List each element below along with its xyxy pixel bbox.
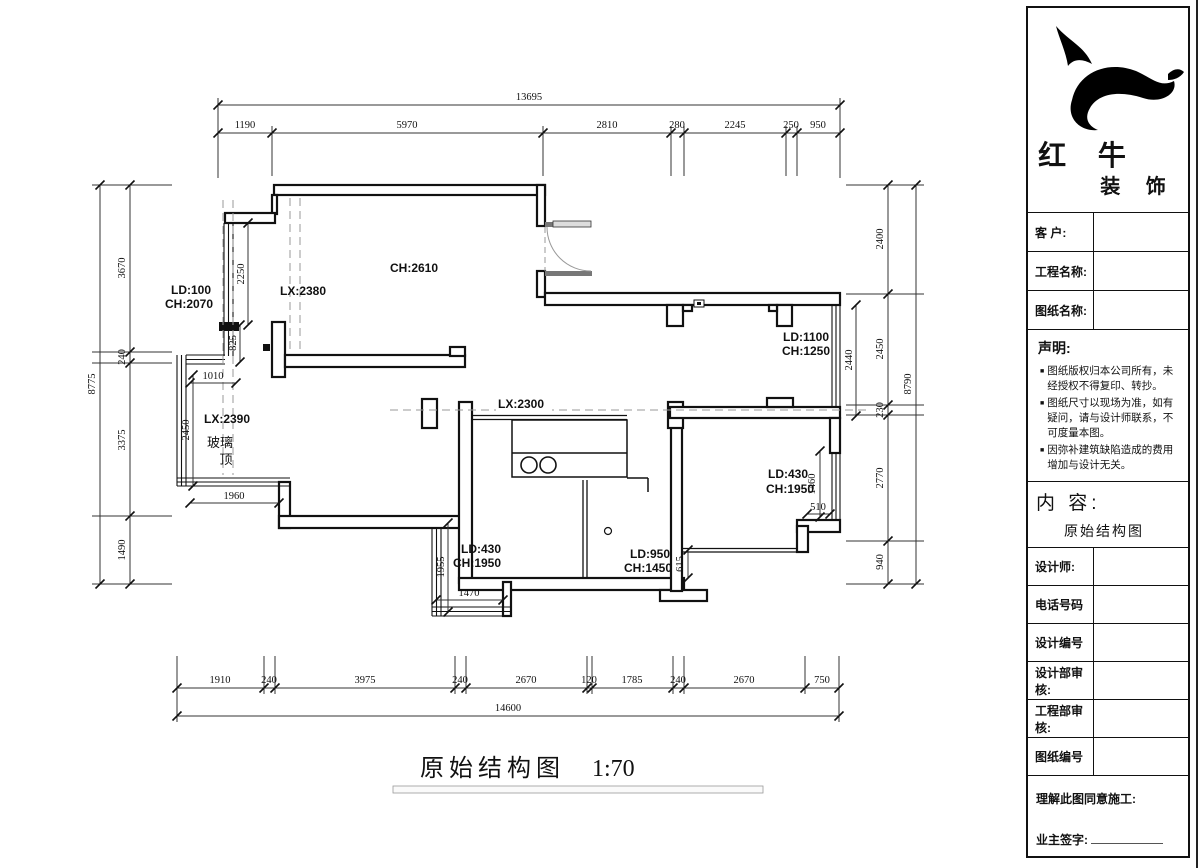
svg-text:1960: 1960: [224, 491, 245, 502]
svg-text:2670: 2670: [734, 675, 755, 686]
dim-right-total: 8790: [903, 374, 914, 395]
drawing-sheet: 13695 1190 5970 2810 280 2245 250 950 14…: [0, 0, 1200, 868]
svg-text:240: 240: [117, 349, 128, 365]
svg-text:250: 250: [783, 120, 799, 131]
drawing-title-text: 原始结构图: [420, 755, 565, 782]
row-sheet-name-label: 图纸名称:: [1028, 291, 1094, 329]
row-design-no: 设计编号: [1028, 624, 1188, 662]
svg-text:940: 940: [875, 554, 886, 570]
svg-text:2400: 2400: [875, 229, 886, 250]
label-lx2380: LX:2380: [280, 284, 326, 298]
statement-heading: 声明:: [1038, 338, 1182, 358]
svg-text:1010: 1010: [203, 371, 224, 382]
row-design-review-value: [1094, 662, 1188, 699]
label-ch2610: CH:2610: [390, 261, 438, 275]
floor-drain: [605, 528, 612, 535]
svg-text:615: 615: [675, 556, 686, 572]
statement-item: ■图纸版权归本公司所有，未经授权不得复印、转抄。: [1040, 364, 1182, 393]
content-section: 内 容: 原始结构图: [1028, 482, 1188, 548]
svg-text:1955: 1955: [436, 557, 447, 578]
wall-marks: [219, 300, 704, 351]
svg-text:950: 950: [810, 120, 826, 131]
svg-text:2245: 2245: [725, 120, 746, 131]
row-sheet-no: 图纸编号: [1028, 738, 1188, 776]
svg-text:230: 230: [875, 402, 886, 418]
svg-text:510: 510: [810, 502, 826, 513]
floor-plan-svg: 13695 1190 5970 2810 280 2245 250 950 14…: [0, 0, 1020, 868]
content-value: 原始结构图: [1064, 521, 1180, 541]
bullet-square-icon: ■: [1040, 399, 1044, 440]
counter-sink: [512, 420, 648, 492]
svg-text:240: 240: [452, 675, 468, 686]
dim-left-total: 8775: [87, 374, 98, 395]
logo-cell: 红 牛 装 饰: [1028, 8, 1188, 213]
row-eng-review-label: 工程部审核:: [1028, 700, 1094, 737]
dim-bottom-total: 14600: [495, 703, 521, 714]
svg-text:1470: 1470: [459, 588, 480, 599]
row-sheet-name: 图纸名称:: [1028, 291, 1188, 330]
svg-text:2770: 2770: [875, 468, 886, 489]
label-lx2300: LX:2300: [498, 397, 544, 411]
sheet-right-border: [1196, 0, 1198, 868]
svg-text:1490: 1490: [117, 540, 128, 561]
row-eng-review: 工程部审核:: [1028, 700, 1188, 738]
statement-section: 声明: ■图纸版权归本公司所有，未经授权不得复印、转抄。 ■图纸尺寸以现场为准，…: [1028, 330, 1188, 482]
svg-text:2440: 2440: [844, 350, 855, 371]
label-ch1250: CH:1250: [782, 344, 830, 358]
row-eng-review-value: [1094, 700, 1188, 737]
row-phone-value: [1094, 586, 1188, 623]
svg-text:2450: 2450: [875, 339, 886, 360]
row-sheet-no-label: 图纸编号: [1028, 738, 1094, 775]
row-project-name: 工程名称:: [1028, 252, 1188, 291]
row-phone: 电话号码: [1028, 586, 1188, 624]
row-designer: 设计师:: [1028, 548, 1188, 586]
row-project-name-value: [1094, 252, 1188, 290]
svg-text:2250: 2250: [236, 264, 247, 285]
row-sheet-name-value: [1094, 291, 1188, 329]
row-design-no-label: 设计编号: [1028, 624, 1094, 661]
svg-text:2670: 2670: [516, 675, 537, 686]
label-ld430-left: LD:430: [461, 542, 501, 556]
row-project-name-label: 工程名称:: [1028, 252, 1094, 290]
statement-item: ■图纸尺寸以现场为准，如有疑问，请与设计师联系，不可度量本图。: [1040, 396, 1182, 440]
label-ch1950-left: CH:1950: [453, 556, 501, 570]
title-block-panel: 红 牛 装 饰 客 户: 工程名称: 图纸名称: 声明: ■图纸版权归本公司所有…: [1026, 6, 1190, 858]
dim-top-total: 13695: [516, 92, 542, 103]
svg-text:3975: 3975: [355, 675, 376, 686]
label-ld1100: LD:1100: [783, 330, 829, 344]
label-ld950: LD:950: [630, 547, 670, 561]
label-ld100: LD:100: [171, 283, 211, 297]
row-design-review: 设计部审核:: [1028, 662, 1188, 700]
brand-name: 红 牛: [1028, 134, 1148, 174]
label-ch1950-right: CH:1950: [766, 482, 814, 496]
svg-text:240: 240: [261, 675, 277, 686]
brand-suffix: 装 饰: [1088, 170, 1188, 199]
content-heading: 内 容:: [1036, 488, 1180, 515]
label-glass-roof-1: 玻璃: [207, 435, 233, 450]
row-customer-label: 客 户:: [1028, 213, 1094, 251]
footer-agree-line: 理解此图同意施工:: [1036, 790, 1180, 807]
svg-text:3670: 3670: [117, 258, 128, 279]
svg-text:240: 240: [670, 675, 686, 686]
bullet-square-icon: ■: [1040, 367, 1044, 393]
svg-text:1190: 1190: [235, 120, 256, 131]
svg-text:280: 280: [669, 120, 685, 131]
svg-text:5970: 5970: [397, 120, 418, 131]
svg-text:2450: 2450: [181, 420, 192, 441]
entry-door: [545, 221, 592, 276]
label-lx2390: LX:2390: [204, 412, 250, 426]
statement-item: ■因弥补建筑缺陷造成的费用增加与设计无关。: [1040, 443, 1182, 472]
label-ld430-right: LD:430: [768, 467, 808, 481]
signature-blank-line: [1091, 831, 1163, 844]
svg-text:3375: 3375: [117, 430, 128, 451]
row-phone-label: 电话号码: [1028, 586, 1094, 623]
row-designer-value: [1094, 548, 1188, 585]
row-design-no-value: [1094, 624, 1188, 661]
row-designer-label: 设计师:: [1028, 548, 1094, 585]
row-customer-value: [1094, 213, 1188, 251]
row-customer: 客 户:: [1028, 213, 1188, 252]
svg-text:825: 825: [228, 335, 239, 351]
bullet-square-icon: ■: [1040, 446, 1044, 472]
label-ch2070: CH:2070: [165, 297, 213, 311]
row-design-review-label: 设计部审核:: [1028, 662, 1094, 699]
label-glass-roof-2: 顶: [219, 452, 232, 467]
bull-logo-icon: [1028, 8, 1188, 132]
drawing-title: 原始结构图 1:70: [393, 755, 763, 793]
svg-text:750: 750: [814, 675, 830, 686]
owner-signature-label: 业主签字:: [1036, 833, 1088, 847]
label-ch1450: CH:1450: [624, 561, 672, 575]
drawing-scale-text: 1:70: [592, 756, 635, 782]
svg-text:120: 120: [581, 675, 597, 686]
title-underline-bar: [393, 786, 763, 793]
statement-list: ■图纸版权归本公司所有，未经授权不得复印、转抄。 ■图纸尺寸以现场为准，如有疑问…: [1036, 364, 1182, 473]
svg-text:2810: 2810: [597, 120, 618, 131]
svg-text:1785: 1785: [622, 675, 643, 686]
footer-section: 理解此图同意施工: 业主签字:: [1028, 776, 1188, 856]
footer-signature-line: 业主签字:: [1036, 831, 1180, 848]
svg-text:1910: 1910: [210, 675, 231, 686]
row-sheet-no-value: [1094, 738, 1188, 775]
